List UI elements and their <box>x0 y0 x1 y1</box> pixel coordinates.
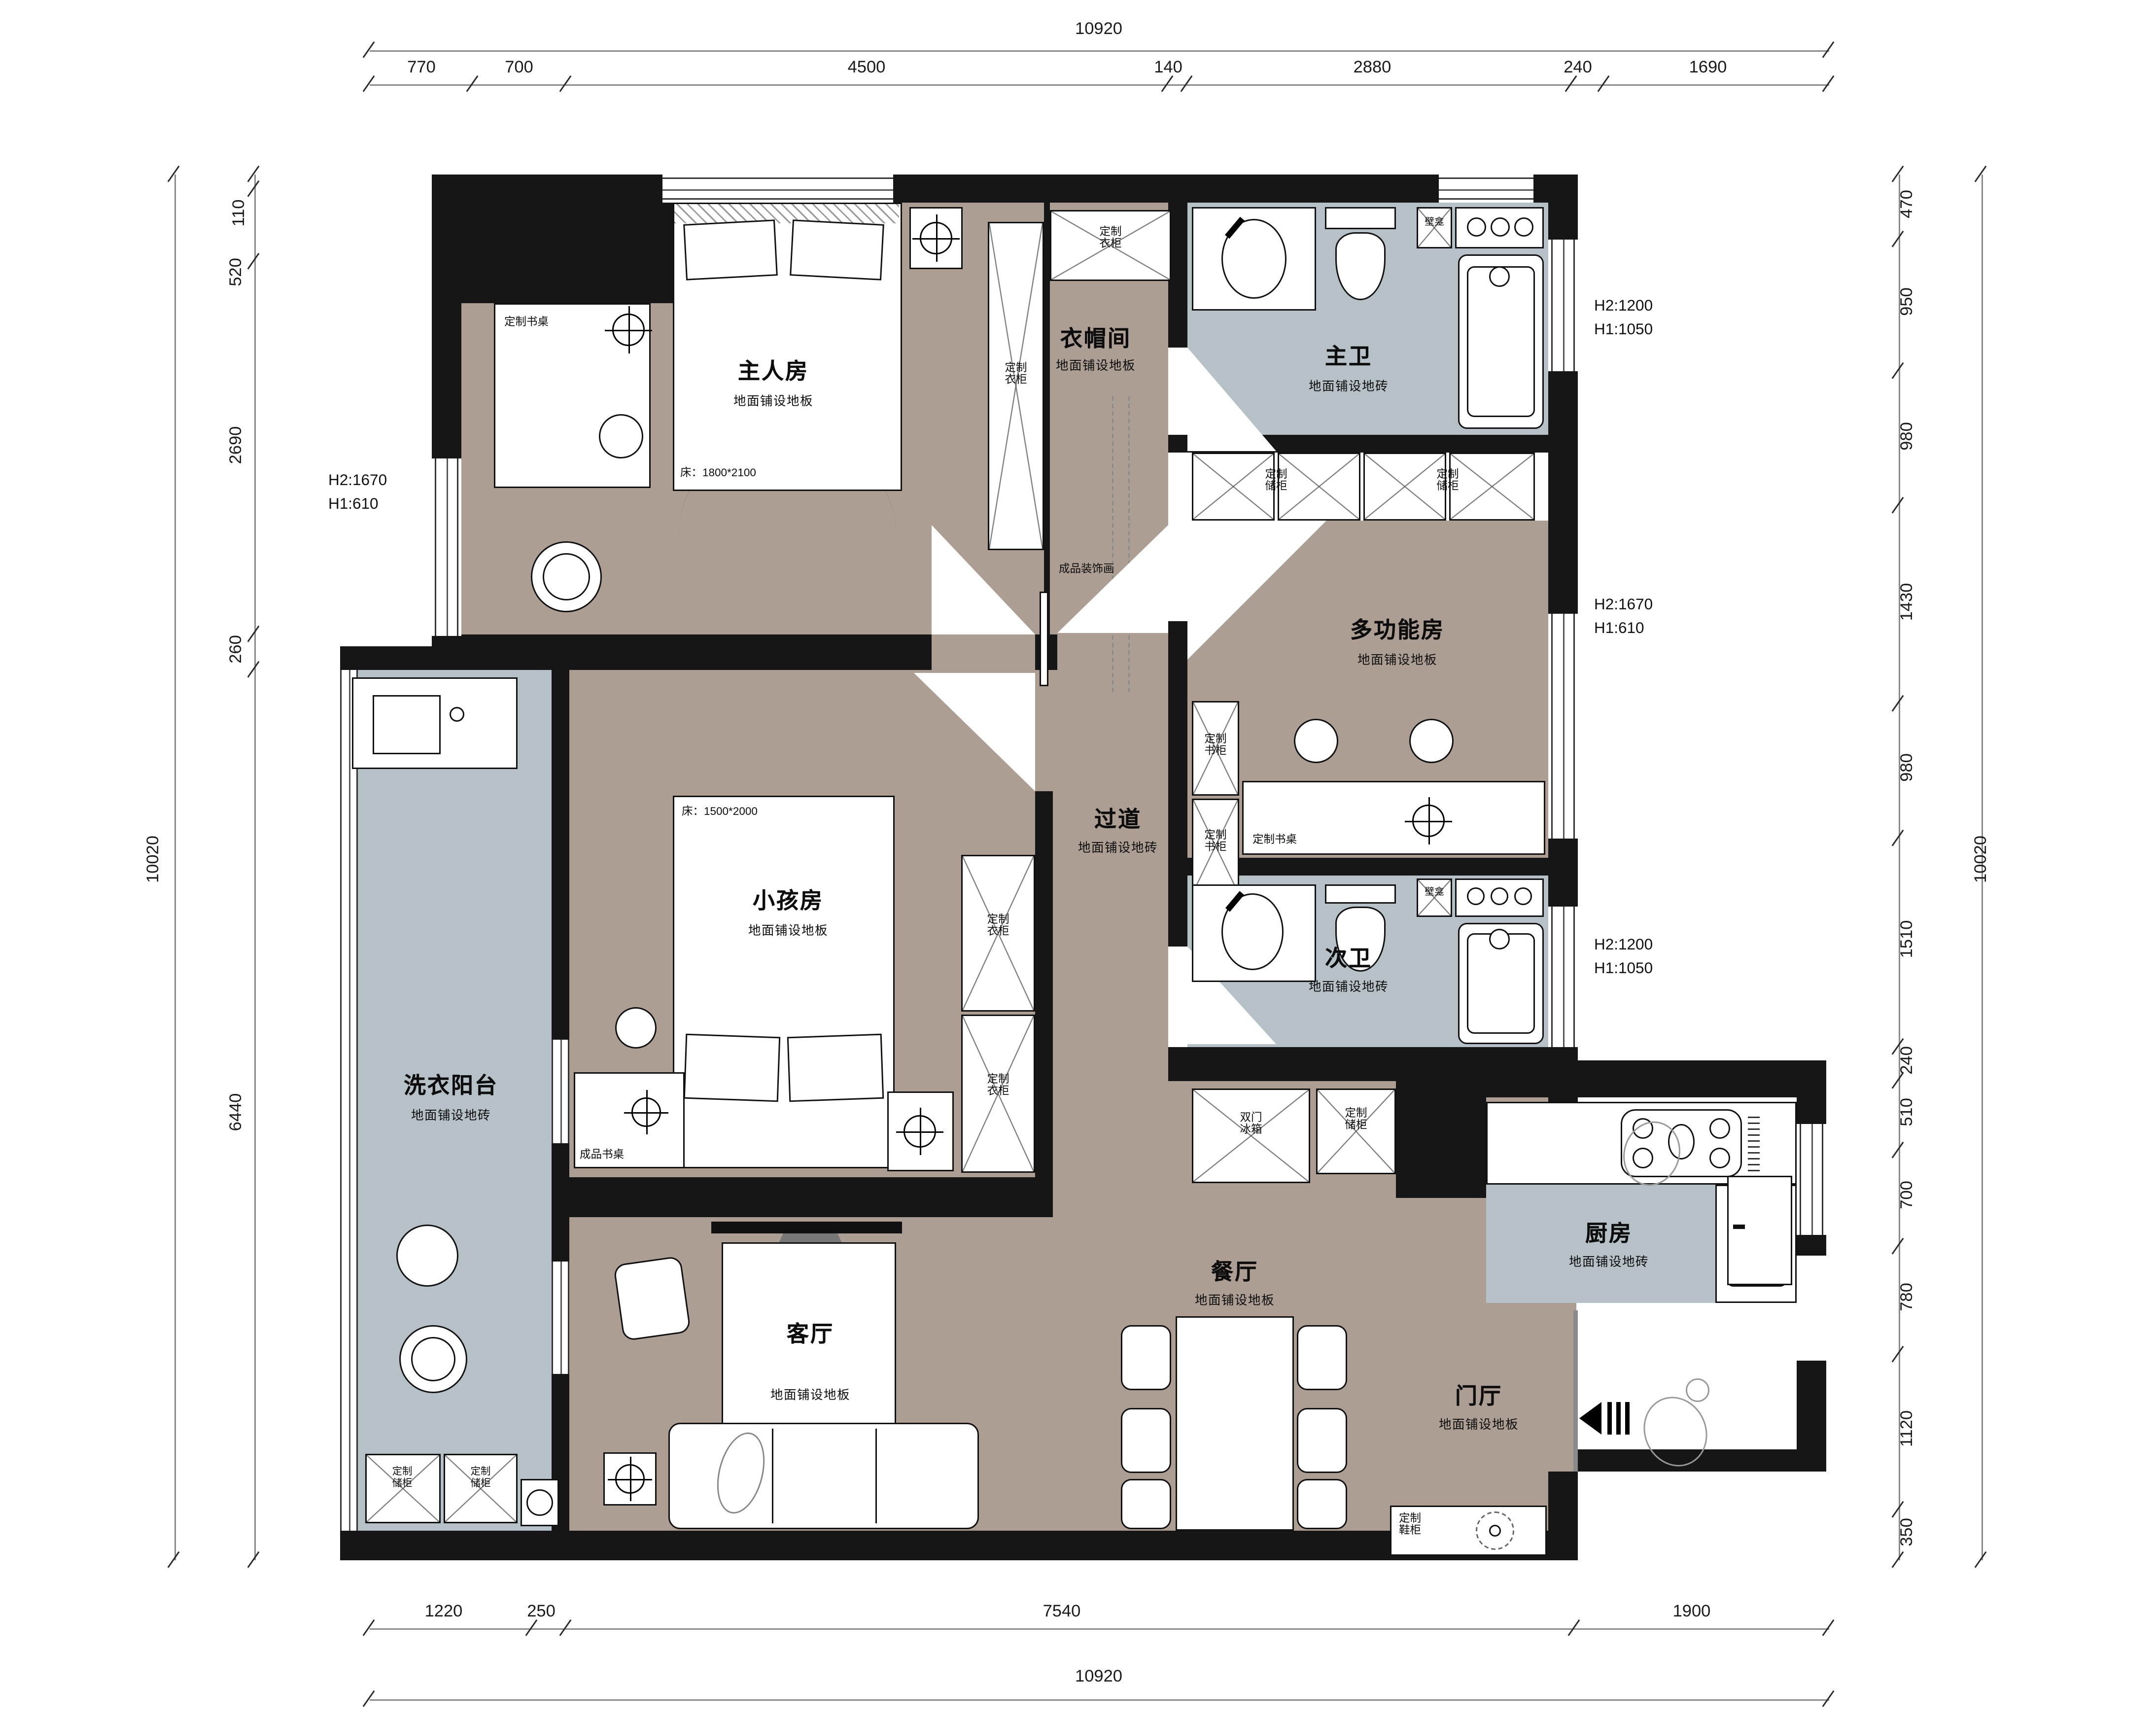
dining-chair-l2 <box>1121 1408 1171 1473</box>
cloak-floor: 地面铺设地板 <box>1056 358 1136 373</box>
bath2-shelf-c3 <box>1514 887 1532 905</box>
laundry-stool-2-seat <box>411 1337 455 1381</box>
dining-chair-r2 <box>1297 1408 1347 1473</box>
wall-wing-right-2 <box>1797 1235 1826 1256</box>
cloak-name: 衣帽间 <box>1060 327 1131 353</box>
kids-wardrobe-label-1: 定制 衣柜 <box>987 914 1009 939</box>
wall-kitchen-block <box>1396 1088 1486 1198</box>
dim-top-overall: 10920 <box>1075 21 1122 38</box>
storage-label-2: 定制 储柜 <box>1437 469 1459 493</box>
note-right-low-l2: H1:1050 <box>1594 958 1653 981</box>
divider-entry <box>1573 1310 1578 1472</box>
wall-kids-left-1 <box>552 670 569 1040</box>
crosshair-nightstand <box>920 222 952 254</box>
corridor-dash-2 <box>1128 396 1130 692</box>
dim-tick <box>168 166 180 182</box>
wall-left-upper <box>432 203 461 458</box>
window-bath2-right <box>1551 907 1575 1047</box>
note-right-mid-l2: H1:610 <box>1594 618 1653 641</box>
stove-grill <box>1748 1115 1760 1171</box>
dim-tick <box>247 626 260 642</box>
decor-painting <box>1040 592 1048 686</box>
storage-label-1: 定制 储柜 <box>1265 469 1287 493</box>
dining-chair-l3 <box>1121 1479 1171 1529</box>
dim-tick <box>1975 1551 1987 1568</box>
living-name: 客厅 <box>787 1322 834 1348</box>
dining-storage-label: 定制 储柜 <box>1345 1108 1367 1132</box>
dim-top-4: 140 <box>1154 59 1182 77</box>
storage-box-4 <box>1449 453 1535 521</box>
mbath-niche-label: 壁龛 <box>1425 217 1444 229</box>
dim-right-overall: 10020 <box>1973 812 1990 907</box>
dim-line-top-seg <box>370 84 1829 86</box>
note-right-low-l1: H2:1200 <box>1594 935 1653 958</box>
dim-top-3: 4500 <box>848 59 886 77</box>
dim-right-8: 510 <box>1899 1065 1916 1159</box>
wall-entry-step <box>1548 1472 1578 1531</box>
dim-left-3: 2690 <box>228 398 245 492</box>
dim-tick <box>1892 362 1905 379</box>
decor-painting-label: 成品装饰画 <box>1059 563 1114 576</box>
laundry-name: 洗衣阳台 <box>404 1074 498 1100</box>
crosshair-master-desk <box>612 314 645 346</box>
kids-floor: 地面铺设地板 <box>748 923 828 938</box>
crosshair-kids-ac <box>904 1115 936 1148</box>
entry-arrow-bar-1 <box>1607 1402 1612 1435</box>
multi-name: 多功能房 <box>1350 618 1445 644</box>
note-left-l1: H2:1670 <box>328 470 387 493</box>
crosshair-kids-desk <box>631 1097 661 1127</box>
laundry-sink <box>373 695 441 754</box>
dim-line-bottom-seg <box>370 1628 1829 1630</box>
cloak-wardrobe-label: 定制 衣柜 <box>1100 226 1122 251</box>
opening-kids-balcony <box>552 1040 569 1143</box>
sofa <box>668 1423 979 1529</box>
wall-balcony-corner <box>340 646 461 670</box>
kids-wardrobe-label-2: 定制 衣柜 <box>987 1074 1009 1098</box>
window-multi-right <box>1551 614 1575 839</box>
bath2-name: 次卫 <box>1325 947 1372 973</box>
wall-top-2 <box>893 175 1439 203</box>
entry-floor: 地面铺设地板 <box>1439 1417 1519 1432</box>
kitchen-floor: 地面铺设地砖 <box>1569 1254 1649 1269</box>
entry-door-leaf <box>1727 1176 1792 1285</box>
dim-tick <box>1975 166 1987 182</box>
dim-right-9: 700 <box>1899 1148 1916 1242</box>
note-right-mid: H2:1670H1:610 <box>1594 595 1653 641</box>
floor-plan-sheet: 定制书桌 床：1800*2100 定制 衣柜 主人房 地面铺设地板 定制 衣柜 … <box>0 0 2156 1720</box>
master-pillow-right <box>790 219 884 281</box>
laundry-stool-1 <box>396 1225 458 1287</box>
fridge-label: 双门 冰箱 <box>1240 1112 1262 1137</box>
bath2-shelf-c2 <box>1491 887 1508 905</box>
wall-wing-right-1 <box>1797 1060 1826 1124</box>
living-armchair <box>613 1256 691 1341</box>
bath2-shower-head <box>1489 929 1510 949</box>
dim-tick <box>247 661 260 678</box>
dim-bottom-3: 7540 <box>1043 1603 1081 1621</box>
multi-bookcase-label-2: 定制 书柜 <box>1205 830 1227 854</box>
mbath-toilet-tank <box>1325 207 1396 229</box>
dining-floor: 地面铺设地板 <box>1195 1293 1275 1307</box>
note-right-top-l2: H1:1050 <box>1594 319 1653 342</box>
wall-top-1 <box>432 175 662 203</box>
dim-right-3: 980 <box>1899 389 1916 484</box>
mbath-tub-inner <box>1467 266 1535 417</box>
bath2-shelf-c1 <box>1467 887 1485 905</box>
multi-desk-label: 定制书桌 <box>1252 834 1297 846</box>
dim-bottom-1: 1220 <box>425 1603 463 1621</box>
dim-line-left-seg <box>254 175 256 1560</box>
entry-arrow-icon <box>1579 1402 1601 1435</box>
storage-box-3 <box>1363 453 1446 521</box>
window-bath-right <box>1551 240 1575 371</box>
window-master-left <box>435 458 458 636</box>
stove-burner-3 <box>1709 1118 1730 1139</box>
dim-top-1: 770 <box>407 59 436 77</box>
dim-right-4: 1430 <box>1899 555 1916 649</box>
dim-top-6: 240 <box>1564 59 1592 77</box>
dim-bottom-overall: 10920 <box>1075 1668 1122 1686</box>
floor-plan: 定制书桌 床：1800*2100 定制 衣柜 主人房 地面铺设地板 定制 衣柜 … <box>0 0 2156 1720</box>
dim-right-6: 1510 <box>1899 892 1916 986</box>
multi-bookcase-label-1: 定制 书柜 <box>1205 734 1227 758</box>
window-bed-bay <box>662 177 893 200</box>
multi-chair-2 <box>1409 719 1454 763</box>
master-desk-label: 定制书桌 <box>504 316 549 329</box>
storage-box-2 <box>1278 453 1360 521</box>
mbath-name: 主卫 <box>1325 345 1372 371</box>
dining-chair-r3 <box>1297 1479 1347 1529</box>
dim-top-5: 2880 <box>1354 59 1391 77</box>
dim-right-1: 470 <box>1899 157 1916 251</box>
dim-left-5: 6440 <box>228 1065 245 1159</box>
kids-bed <box>673 796 895 1168</box>
dim-bottom-4: 1900 <box>1673 1603 1711 1621</box>
dim-tick <box>1892 497 1905 514</box>
tv-panel <box>711 1222 902 1233</box>
living-floor: 地面铺设地板 <box>770 1387 850 1402</box>
storage-box-1 <box>1192 453 1275 521</box>
dim-top-2: 700 <box>505 59 533 77</box>
window-kitchen-right <box>1800 1124 1823 1235</box>
window-bath-top <box>1439 177 1533 200</box>
crosshair-side-table <box>615 1464 645 1494</box>
bulkhead-master <box>461 203 676 303</box>
kids-pillow-right <box>787 1034 884 1102</box>
dining-chair-l1 <box>1121 1325 1171 1390</box>
crosshair-multi-desk <box>1412 805 1445 837</box>
dim-tick <box>168 1551 180 1568</box>
corridor-name: 过道 <box>1094 807 1142 834</box>
master-wardrobe-label: 定制 衣柜 <box>1005 362 1027 387</box>
sofa-seam-1 <box>772 1429 774 1523</box>
bath2-toilet-tank <box>1325 884 1396 904</box>
note-left-l2: H1:610 <box>328 493 387 517</box>
dim-tick <box>247 1551 260 1568</box>
multi-floor: 地面铺设地板 <box>1357 652 1437 667</box>
master-pillow-left <box>683 219 778 281</box>
plant-center <box>1489 1525 1501 1537</box>
wall-bath2-bottom <box>1168 1047 1548 1081</box>
wall-living-left-1 <box>552 1217 569 1262</box>
master-room-floor: 地面铺设地板 <box>733 393 813 408</box>
dim-top-7: 1690 <box>1689 59 1727 77</box>
dim-right-5: 980 <box>1899 720 1916 815</box>
dim-bottom-2: 250 <box>527 1603 556 1621</box>
note-right-mid-l1: H2:1670 <box>1594 595 1653 618</box>
wall-right-2 <box>1548 371 1578 614</box>
kids-desk-chair <box>615 1007 657 1049</box>
wall-kids-left-2 <box>552 1143 569 1177</box>
sofa-seam-2 <box>875 1429 877 1523</box>
entry-door-handle <box>1733 1225 1745 1229</box>
dim-tick <box>247 253 260 270</box>
dim-line-top-overall <box>370 50 1829 52</box>
stove-burner-4 <box>1709 1148 1730 1168</box>
mbath-shelf-c1 <box>1467 217 1486 237</box>
entry-name: 门厅 <box>1455 1384 1502 1410</box>
dim-right-12: 350 <box>1899 1485 1916 1580</box>
dim-tick <box>1892 695 1905 712</box>
mbath-shower-head <box>1489 266 1510 287</box>
kitchen-name: 厨房 <box>1585 1222 1633 1248</box>
note-right-low: H2:1200H1:1050 <box>1594 935 1653 982</box>
wall-right-1 <box>1548 175 1578 240</box>
laundry-floor <box>349 670 552 1531</box>
master-room-name: 主人房 <box>738 359 809 386</box>
dim-left-2: 520 <box>228 225 245 319</box>
wall-right-3 <box>1548 839 1578 907</box>
dim-line-bottom-overall <box>370 1699 1829 1701</box>
note-right-top: H2:1200H1:1050 <box>1594 296 1653 343</box>
master-desk-chair <box>599 414 643 458</box>
laundry-faucet <box>450 707 464 722</box>
person-figure-entry-head <box>1686 1378 1709 1402</box>
entry-arrow-bar-2 <box>1616 1402 1621 1435</box>
dim-tick <box>1892 1346 1905 1363</box>
dim-right-2: 950 <box>1899 254 1916 349</box>
dim-right-11: 1120 <box>1899 1381 1916 1476</box>
opening-living-balcony <box>552 1262 569 1374</box>
corridor-dash-1 <box>1112 396 1113 692</box>
shoe-cabinet-label: 定制 鞋柜 <box>1399 1513 1421 1538</box>
multi-chair-1 <box>1294 719 1338 763</box>
wall-master-kids-1 <box>461 634 932 670</box>
kids-bed-size: 床：1500*2000 <box>682 806 758 818</box>
kids-name: 小孩房 <box>753 889 824 915</box>
bath2-niche-label: 壁龛 <box>1425 887 1444 899</box>
mbath-shelf-c2 <box>1491 217 1510 237</box>
laundry-floor: 地面铺设地砖 <box>411 1108 491 1123</box>
dining-table <box>1176 1316 1294 1531</box>
dim-left-4: 260 <box>228 602 245 697</box>
laundry-unit-circle <box>526 1489 553 1516</box>
dining-chair-r1 <box>1297 1325 1347 1390</box>
window-balcony-left <box>340 670 358 1531</box>
corridor-floor: 地面铺设地砖 <box>1078 840 1158 855</box>
wall-cloak-thin <box>1044 203 1050 634</box>
master-bed-headboard <box>674 204 899 223</box>
wall-multi-left <box>1168 621 1187 858</box>
laundry-cabinet-label-2: 定制 储柜 <box>471 1467 491 1491</box>
dim-right-10: 780 <box>1899 1250 1916 1344</box>
note-left: H2:1670H1:610 <box>328 470 387 517</box>
master-armchair-seat <box>543 553 590 600</box>
note-right-top-l1: H2:1200 <box>1594 296 1653 319</box>
dining-name: 餐厅 <box>1211 1260 1258 1286</box>
dim-tick <box>247 180 260 197</box>
master-bed-size: 床：1800*2100 <box>680 467 756 480</box>
entry-arrow-bar-3 <box>1625 1402 1630 1435</box>
bath2-floor: 地面铺设地砖 <box>1309 979 1389 994</box>
kids-pillow-left <box>684 1034 780 1102</box>
dim-left-overall: 10020 <box>145 812 163 907</box>
wall-bath2-left <box>1168 876 1187 947</box>
laundry-cabinet-label-1: 定制 储柜 <box>392 1467 413 1491</box>
dim-line-left-overall <box>174 175 176 1560</box>
mbath-floor: 地面铺设地砖 <box>1309 379 1389 393</box>
wall-corridor-kids <box>1035 791 1053 1177</box>
wall-kids-bottom <box>552 1177 1053 1217</box>
dim-tick <box>1892 830 1905 846</box>
kids-desk-label: 成品书桌 <box>580 1149 624 1161</box>
mbath-shelf-c3 <box>1514 217 1533 237</box>
